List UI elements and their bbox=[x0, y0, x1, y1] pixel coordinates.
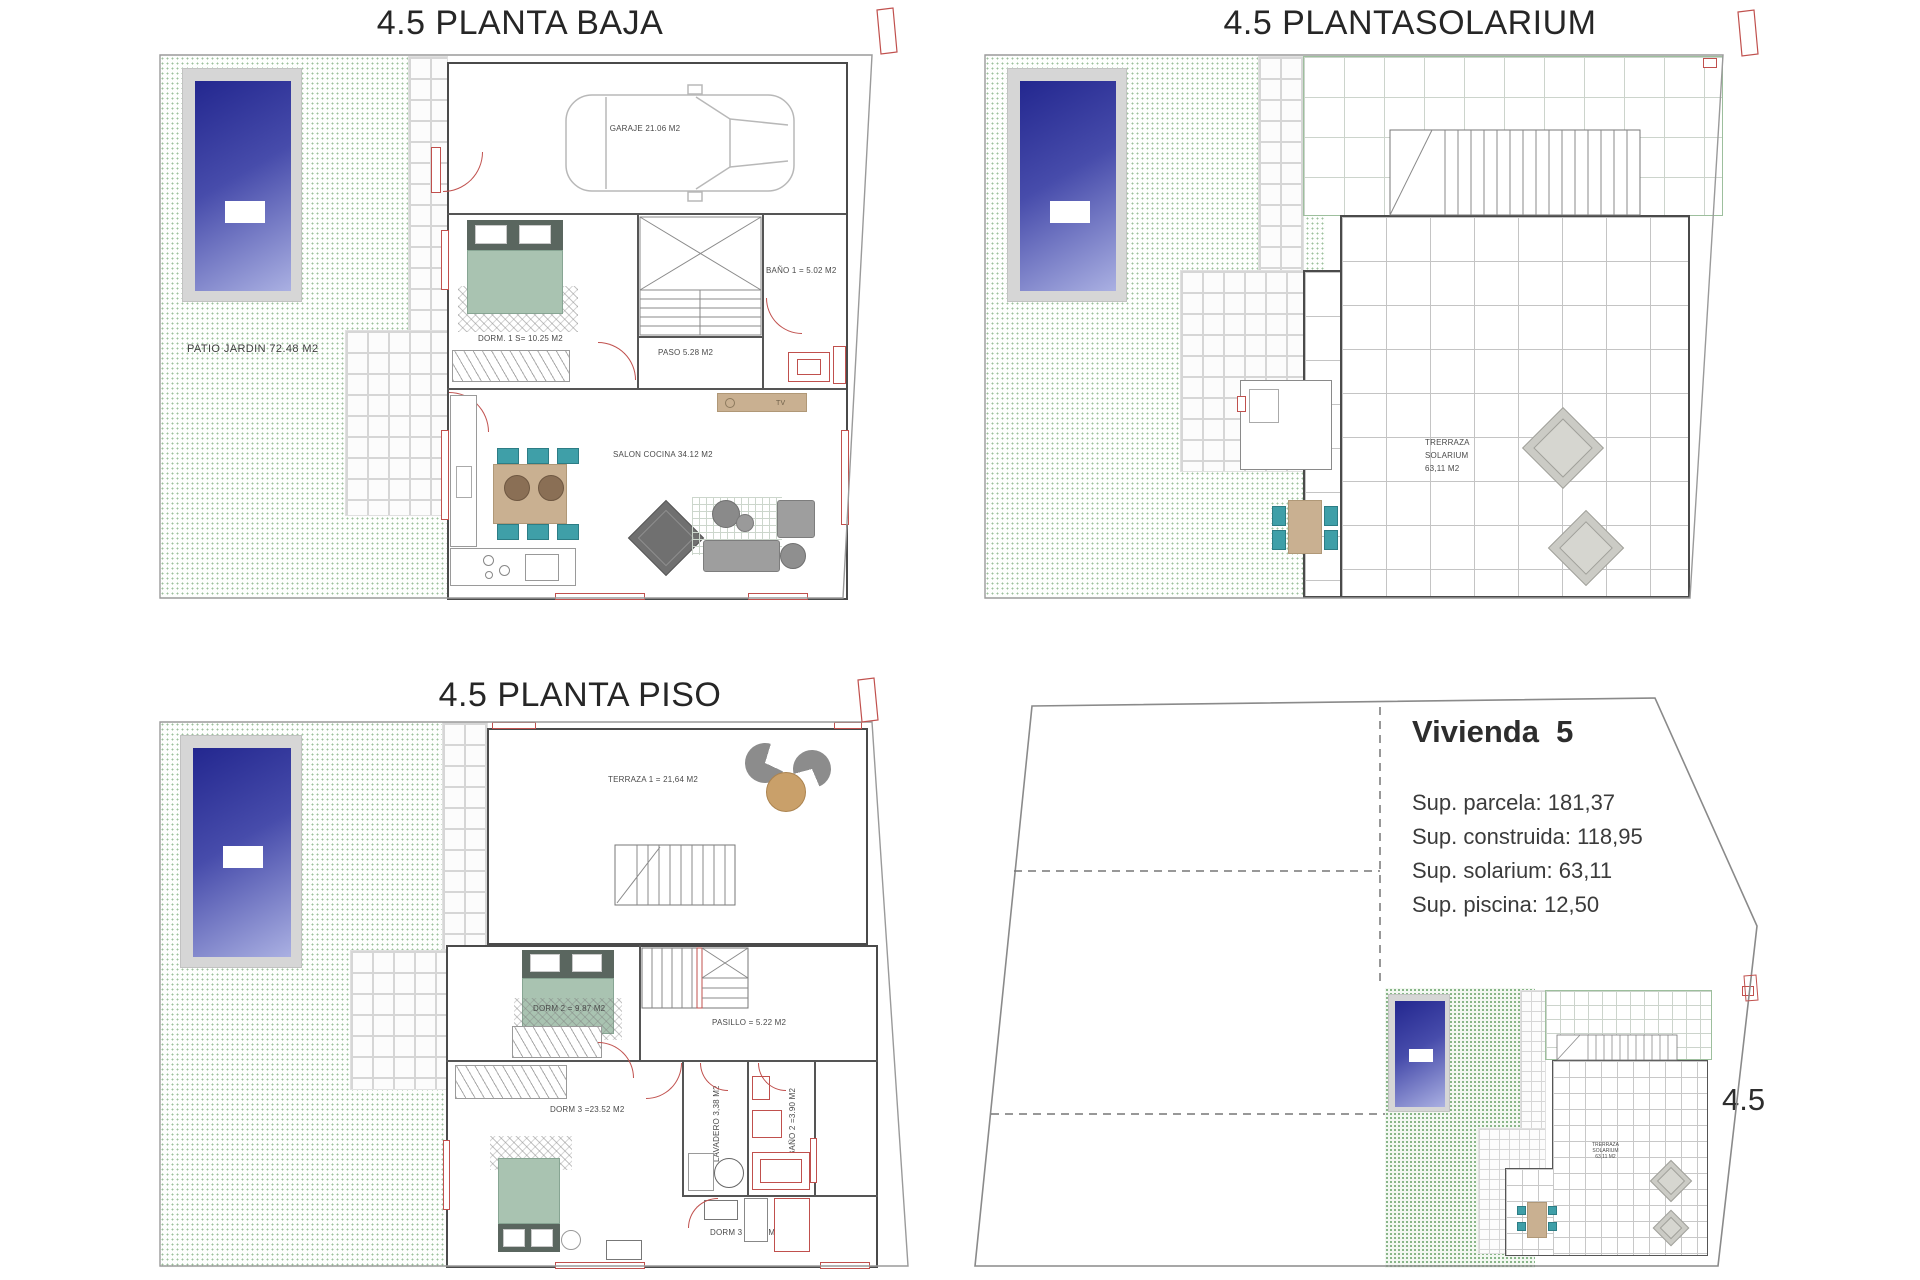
stairs-icon bbox=[642, 948, 748, 1008]
survey-flag-icon bbox=[877, 8, 897, 54]
survey-flag-icon bbox=[858, 678, 878, 722]
linework-overlay bbox=[0, 0, 1920, 1280]
car-icon bbox=[566, 85, 794, 201]
parcel-outline-piso bbox=[160, 722, 908, 1266]
survey-flag-icon bbox=[1738, 10, 1758, 56]
parcel-outline-vivienda bbox=[975, 698, 1757, 1266]
stairs-icon bbox=[615, 845, 735, 905]
stairs-icon bbox=[640, 217, 761, 335]
floorplan-sheet: 4.5 PLANTA BAJA 4.5 PLANTASOLARIUM 4.5 P… bbox=[0, 0, 1920, 1280]
stairs-icon bbox=[1557, 1035, 1677, 1060]
parcel-outline-baja bbox=[160, 55, 872, 598]
stairs-icon bbox=[1390, 130, 1640, 215]
